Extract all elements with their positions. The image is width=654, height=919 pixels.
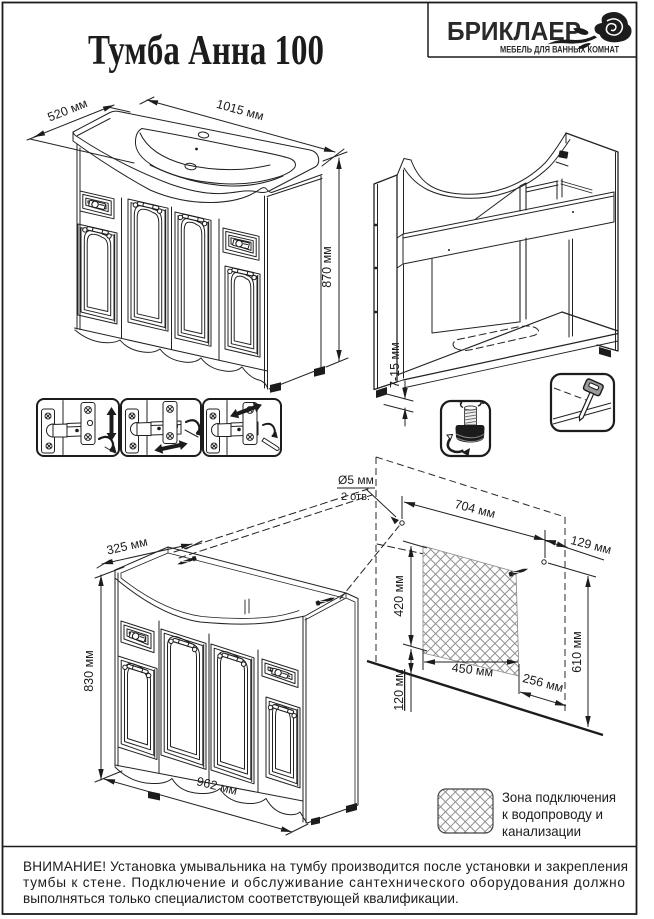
svg-text:610 мм: 610 мм	[570, 631, 584, 673]
svg-text:120 мм: 120 мм	[392, 669, 406, 711]
svg-text:МЕБЕЛЬ ДЛЯ ВАННЫХ КОМНАТ: МЕБЕЛЬ ДЛЯ ВАННЫХ КОМНАТ	[500, 45, 619, 55]
svg-text:тумбы к стене. Подключение и о: тумбы к стене. Подключение и обслуживани…	[23, 875, 625, 890]
svg-text:830 мм: 830 мм	[82, 650, 96, 692]
svg-text:канализации: канализации	[502, 823, 581, 839]
svg-text:2 отв.: 2 отв.	[341, 491, 370, 503]
svg-text:ВНИМАНИЕ! Установка умывальник: ВНИМАНИЕ! Установка умывальника на тумбу…	[23, 859, 628, 874]
svg-text:870 мм: 870 мм	[320, 246, 334, 288]
svg-text:выполняться только специалисто: выполняться только специалистом соответс…	[23, 891, 459, 906]
svg-text:Зона подключения: Зона подключения	[502, 789, 616, 805]
svg-text:к водопроводу и: к водопроводу и	[502, 806, 603, 822]
svg-text:420 мм: 420 мм	[392, 575, 406, 617]
svg-text:Тумба Анна 100: Тумба Анна 100	[88, 28, 324, 74]
svg-text:Ø5 мм: Ø5 мм	[338, 473, 374, 487]
svg-text:7-15 мм: 7-15 мм	[388, 342, 402, 388]
